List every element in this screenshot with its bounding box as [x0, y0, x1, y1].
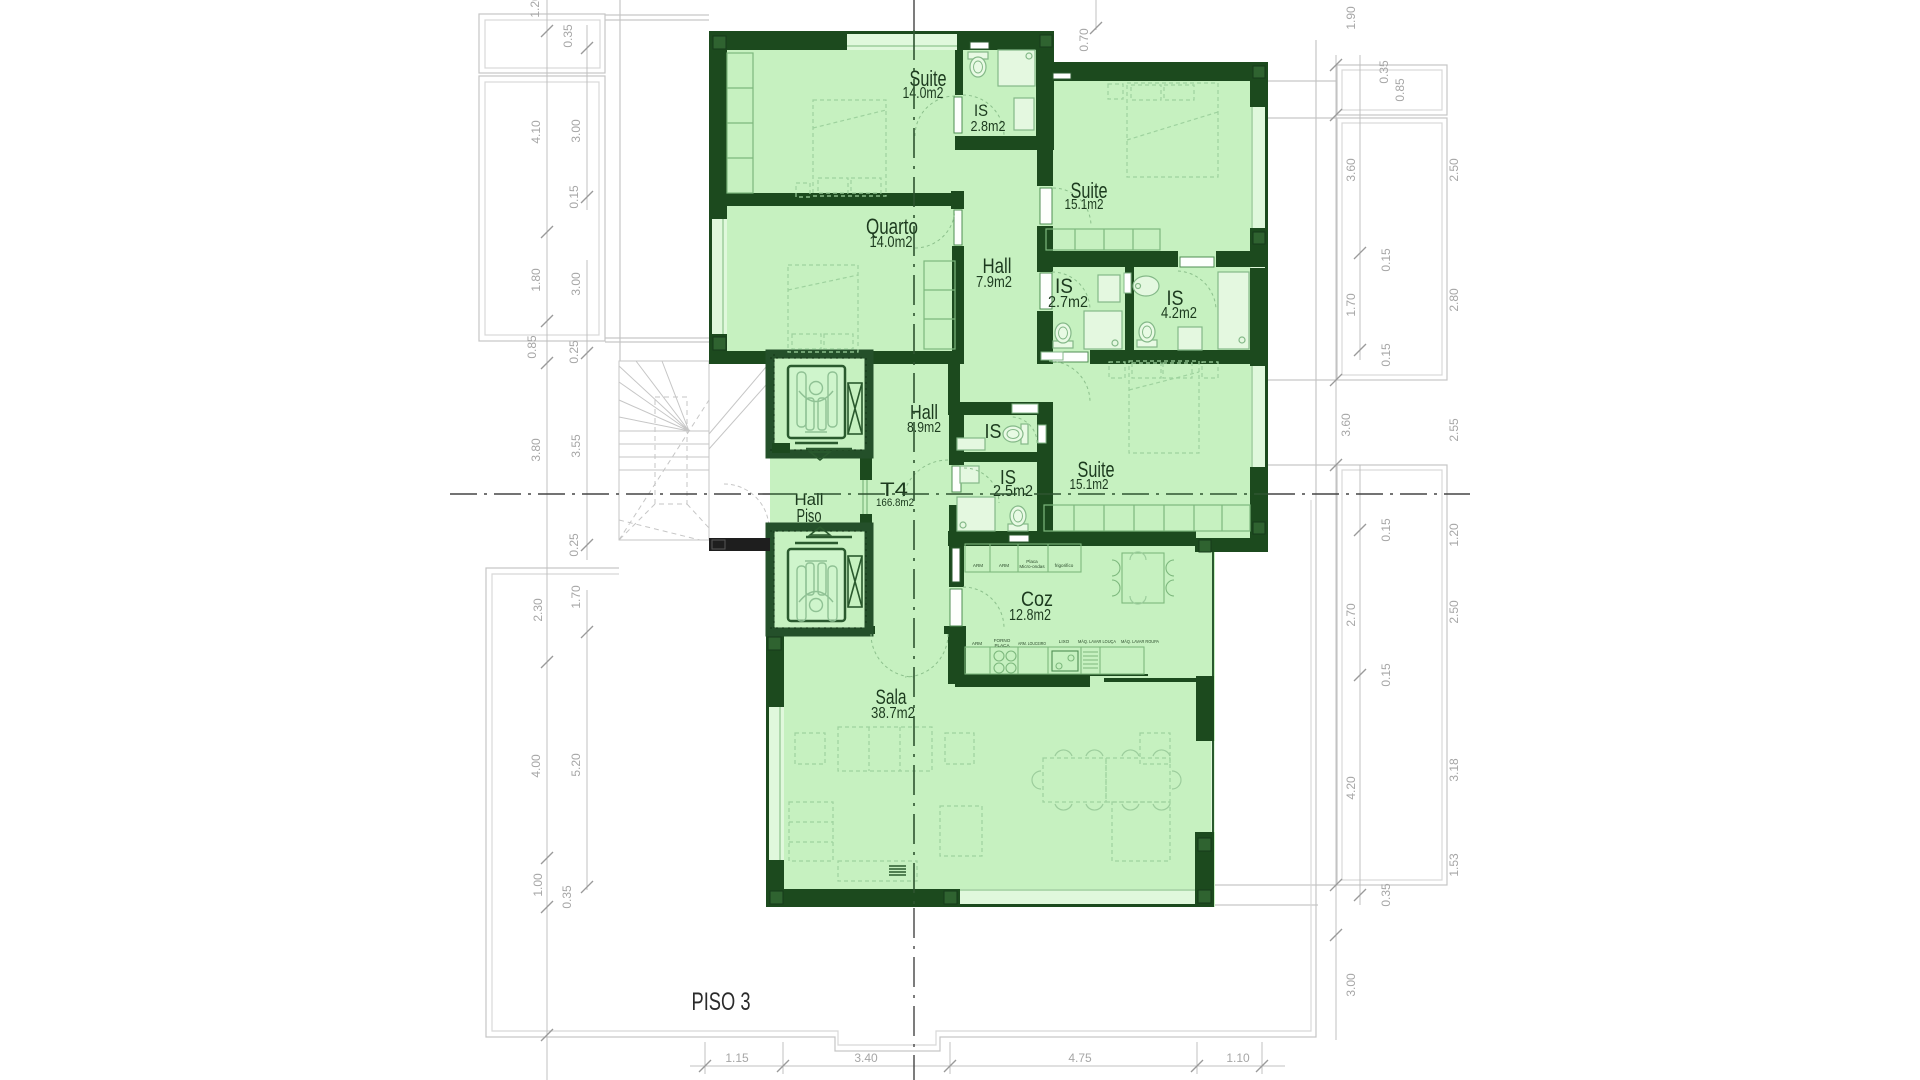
svg-text:ARM: ARM — [972, 641, 982, 646]
svg-text:0.85: 0.85 — [1393, 78, 1407, 102]
svg-text:3.00: 3.00 — [569, 272, 583, 296]
svg-text:0.15: 0.15 — [1379, 518, 1393, 542]
svg-text:15.1m2: 15.1m2 — [1065, 196, 1104, 213]
svg-text:2.7m2: 2.7m2 — [1048, 294, 1088, 311]
svg-text:ARM: ARM — [999, 563, 1009, 568]
svg-text:38.7m2: 38.7m2 — [871, 705, 915, 722]
svg-text:2.5m2: 2.5m2 — [993, 483, 1033, 500]
svg-text:ARM. LOUCEIRO: ARM. LOUCEIRO — [1018, 641, 1046, 646]
svg-text:2.8m2: 2.8m2 — [971, 118, 1006, 135]
svg-text:3.00: 3.00 — [1344, 973, 1358, 997]
svg-text:1.00: 1.00 — [531, 873, 545, 897]
svg-text:2.30: 2.30 — [531, 598, 545, 622]
svg-text:LIXO: LIXO — [1059, 639, 1070, 644]
svg-text:1.20: 1.20 — [528, 0, 542, 18]
svg-text:1.70: 1.70 — [1344, 293, 1358, 317]
svg-text:3.60: 3.60 — [1344, 158, 1358, 182]
svg-text:0.25: 0.25 — [567, 340, 581, 364]
svg-text:0.15: 0.15 — [567, 185, 581, 209]
svg-text:15.1m2: 15.1m2 — [1070, 476, 1109, 493]
svg-text:12.8m2: 12.8m2 — [1009, 607, 1051, 624]
svg-text:1.20: 1.20 — [1447, 523, 1461, 547]
svg-text:0.35: 0.35 — [561, 24, 575, 48]
svg-text:0.15: 0.15 — [1379, 343, 1393, 367]
svg-text:3.40: 3.40 — [854, 1051, 878, 1065]
svg-text:PLACA: PLACA — [994, 643, 1010, 648]
svg-text:14.0m2: 14.0m2 — [903, 85, 944, 102]
svg-text:PISO 3: PISO 3 — [692, 988, 751, 1016]
svg-text:1.15: 1.15 — [725, 1051, 749, 1065]
svg-text:1.80: 1.80 — [529, 268, 543, 292]
svg-text:MÁQ. LAVAR ROUPA: MÁQ. LAVAR ROUPA — [1121, 638, 1160, 644]
svg-text:0.70: 0.70 — [1077, 28, 1091, 52]
svg-text:2.80: 2.80 — [1447, 288, 1461, 312]
svg-text:frigorifico: frigorifico — [1055, 563, 1074, 568]
svg-text:4.75: 4.75 — [1068, 1051, 1092, 1065]
svg-text:4.20: 4.20 — [1344, 776, 1358, 800]
svg-text:1.10: 1.10 — [1226, 1051, 1250, 1065]
svg-text:2.50: 2.50 — [1447, 600, 1461, 624]
svg-text:4.2m2: 4.2m2 — [1161, 305, 1197, 322]
svg-text:4.00: 4.00 — [529, 754, 543, 778]
svg-text:MÁQ. LAVAR LOUÇA: MÁQ. LAVAR LOUÇA — [1078, 638, 1117, 644]
svg-text:8.9m2: 8.9m2 — [907, 419, 941, 436]
svg-text:4.10: 4.10 — [529, 120, 543, 144]
svg-text:3.55: 3.55 — [569, 434, 583, 458]
svg-text:2.70: 2.70 — [1344, 603, 1358, 627]
svg-text:0.25: 0.25 — [567, 533, 581, 557]
svg-text:3.80: 3.80 — [529, 438, 543, 462]
svg-text:0.85: 0.85 — [525, 335, 539, 359]
svg-text:Piso: Piso — [797, 506, 822, 526]
svg-text:Micro-ondas: Micro-ondas — [1019, 564, 1045, 569]
svg-text:ARM: ARM — [973, 563, 983, 568]
svg-text:0.35: 0.35 — [1377, 60, 1391, 84]
svg-text:1.70: 1.70 — [569, 585, 583, 609]
svg-text:0.35: 0.35 — [560, 885, 574, 909]
svg-text:1.90: 1.90 — [1344, 6, 1358, 30]
svg-text:0.35: 0.35 — [1379, 883, 1393, 907]
svg-text:3.00: 3.00 — [569, 119, 583, 143]
svg-text:7.9m2: 7.9m2 — [976, 274, 1012, 291]
svg-text:1.53: 1.53 — [1447, 853, 1461, 877]
svg-text:2.50: 2.50 — [1447, 158, 1461, 182]
svg-text:3.18: 3.18 — [1447, 758, 1461, 782]
svg-text:5.20: 5.20 — [569, 753, 583, 777]
svg-text:14.0m2: 14.0m2 — [870, 234, 913, 251]
svg-text:0.15: 0.15 — [1379, 248, 1393, 272]
svg-text:2.55: 2.55 — [1447, 418, 1461, 442]
svg-text:3.60: 3.60 — [1339, 413, 1353, 437]
svg-text:166.8m2: 166.8m2 — [876, 497, 914, 509]
svg-text:IS: IS — [985, 421, 1002, 443]
svg-text:0.15: 0.15 — [1379, 663, 1393, 687]
